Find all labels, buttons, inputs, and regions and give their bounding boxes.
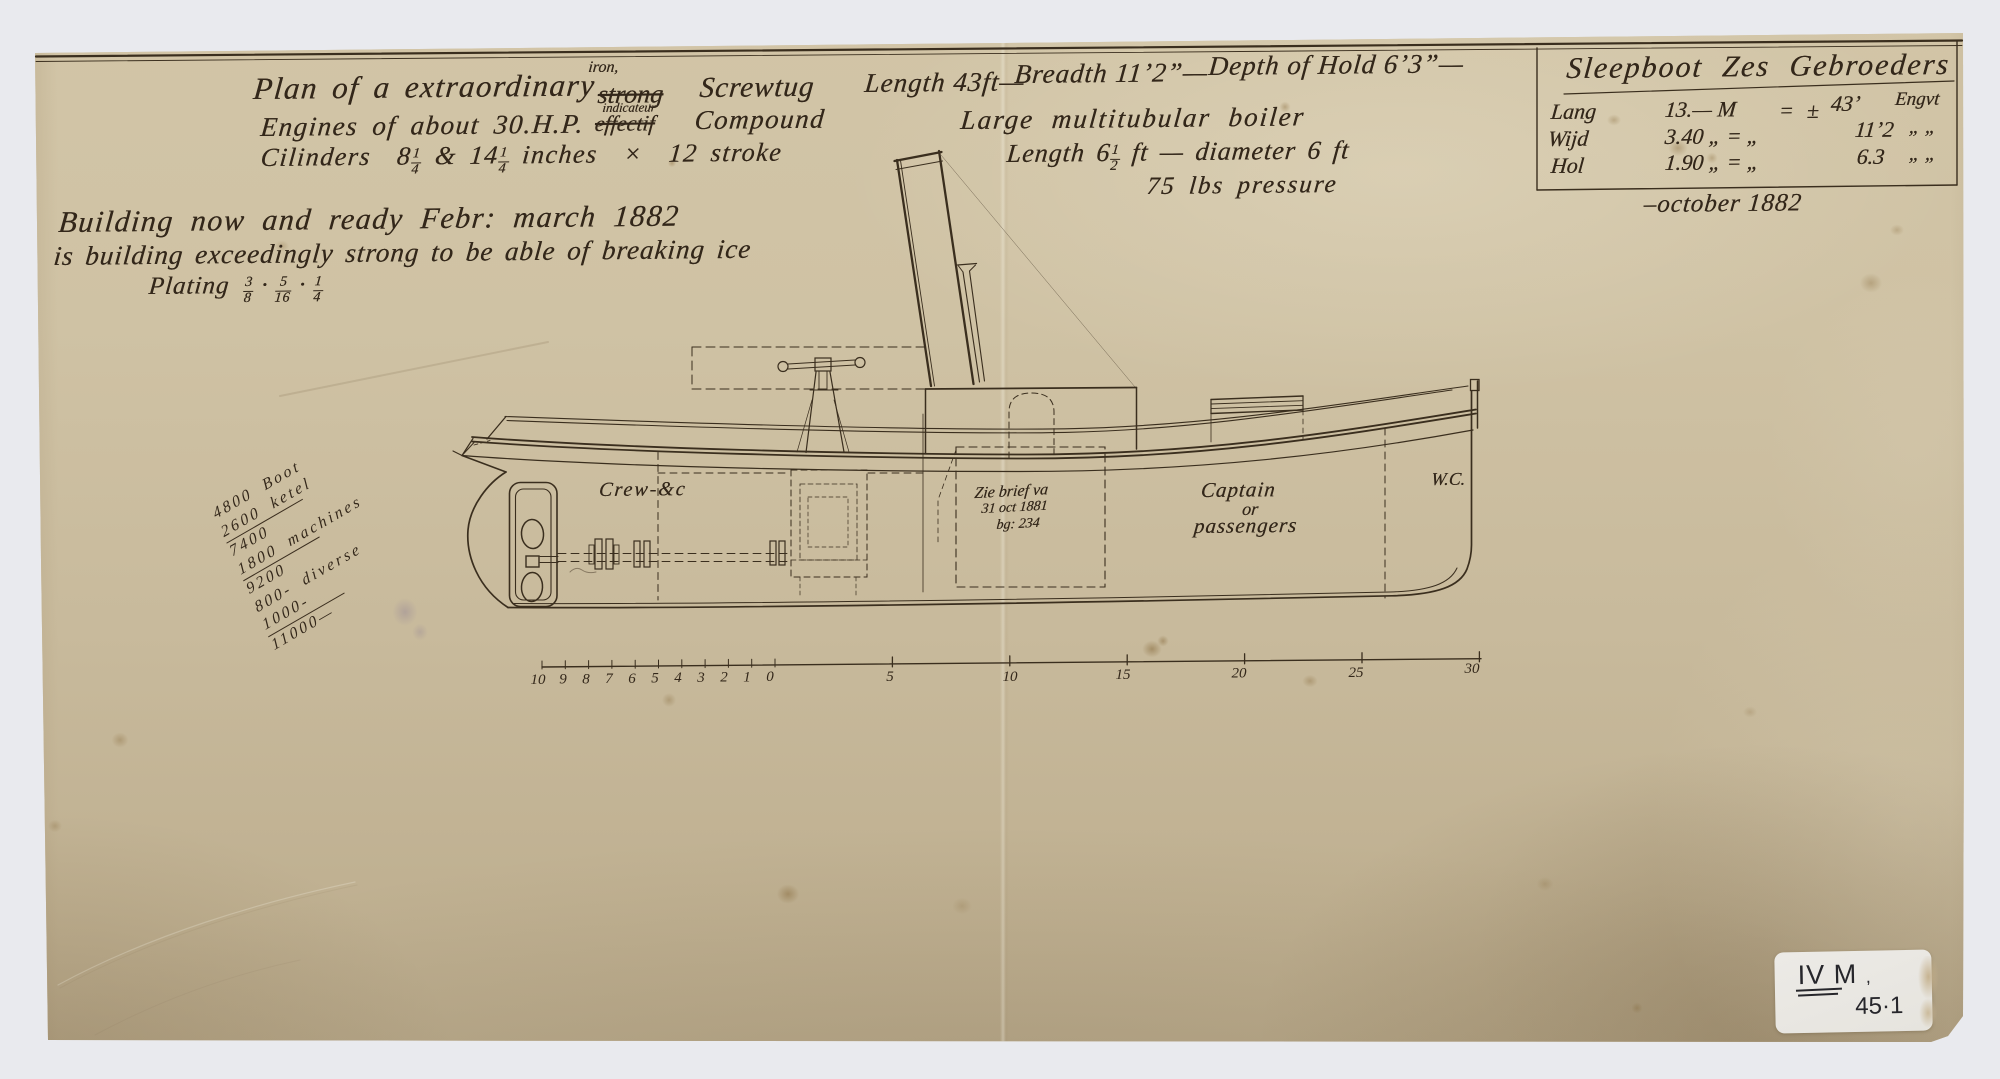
svg-text:9: 9	[559, 672, 567, 688]
svg-text:10: 10	[1003, 669, 1019, 685]
svg-text:10: 10	[531, 672, 547, 688]
svg-text:20: 20	[1232, 666, 1248, 682]
svg-text:8: 8	[582, 671, 590, 687]
svg-text:25: 25	[1349, 665, 1365, 681]
svg-text:0: 0	[766, 669, 774, 685]
svg-text:2: 2	[720, 670, 728, 686]
svg-text:1: 1	[743, 669, 751, 685]
svg-text:4: 4	[674, 670, 682, 686]
svg-text:5: 5	[886, 669, 894, 685]
svg-text:3: 3	[696, 670, 705, 686]
svg-text:15: 15	[1116, 667, 1132, 683]
svg-text:30: 30	[1464, 661, 1481, 677]
svg-text:7: 7	[605, 671, 614, 687]
svg-text:6: 6	[628, 671, 636, 687]
svg-text:5: 5	[651, 671, 659, 687]
